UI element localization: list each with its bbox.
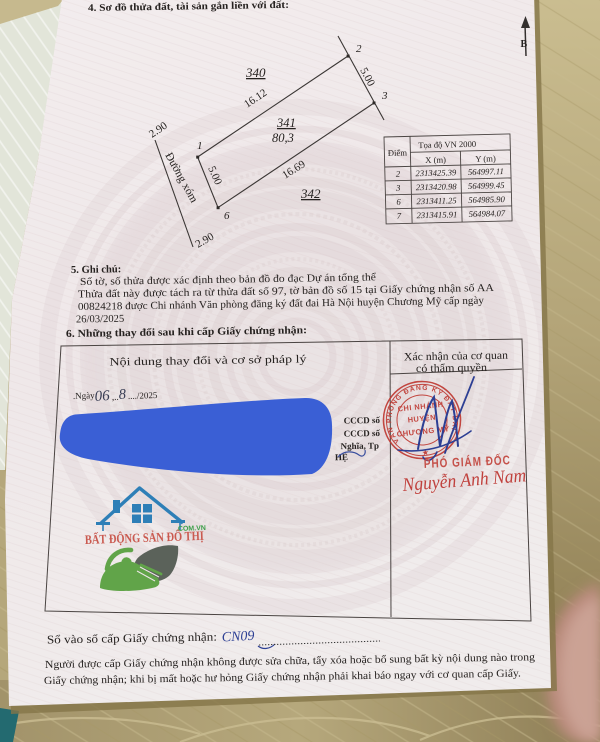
- svg-text:564999.45: 564999.45: [468, 180, 505, 191]
- svg-text:564984.07: 564984.07: [469, 208, 506, 219]
- svg-text:342: 342: [300, 186, 321, 201]
- svg-text:có thẩm quyền: có thẩm quyền: [416, 362, 488, 375]
- svg-text:CCCD số: CCCD số: [344, 415, 381, 426]
- svg-text:06: 06: [94, 388, 111, 405]
- svg-text:Nghĩa, Tp: Nghĩa, Tp: [341, 441, 380, 452]
- svg-text:564985.90: 564985.90: [468, 194, 505, 205]
- svg-text:80,3: 80,3: [272, 131, 294, 145]
- svg-text:340: 340: [245, 65, 266, 80]
- svg-text:B: B: [521, 39, 528, 50]
- svg-text:Sổ vào sổ cấp Giấy chứng nhận:: Sổ vào sổ cấp Giấy chứng nhận:: [47, 630, 217, 647]
- svg-text:..../2025: ..../2025: [128, 390, 158, 401]
- svg-text:Y (m): Y (m): [475, 153, 496, 163]
- svg-text:2313415.91: 2313415.91: [416, 209, 457, 220]
- svg-text:.Ngày: .Ngày: [73, 390, 96, 401]
- svg-text:Điểm: Điểm: [388, 147, 408, 157]
- svg-text:CCCD số: CCCD số: [344, 428, 381, 439]
- svg-text:6: 6: [224, 210, 230, 222]
- svg-text:1: 1: [197, 140, 203, 152]
- svg-text:341: 341: [276, 116, 296, 130]
- svg-text:Tọa độ VN 2000: Tọa độ VN 2000: [418, 139, 476, 150]
- svg-text:2313420.98: 2313420.98: [416, 181, 458, 192]
- svg-text:X (m): X (m): [425, 154, 446, 165]
- svg-text:2: 2: [356, 43, 362, 55]
- svg-text:2313425.39: 2313425.39: [415, 167, 457, 178]
- svg-text:CN09: CN09: [221, 629, 254, 646]
- svg-text:3: 3: [381, 90, 388, 102]
- svg-text:3: 3: [395, 183, 401, 193]
- svg-text:26/03/2025: 26/03/2025: [76, 314, 124, 326]
- svg-text:2313411.25: 2313411.25: [416, 195, 457, 206]
- svg-text:Xác nhận của cơ quan: Xác nhận của cơ quan: [404, 350, 509, 364]
- svg-text:564997.11: 564997.11: [468, 166, 504, 177]
- svg-text:5. Ghi chú:: 5. Ghi chú:: [71, 264, 122, 276]
